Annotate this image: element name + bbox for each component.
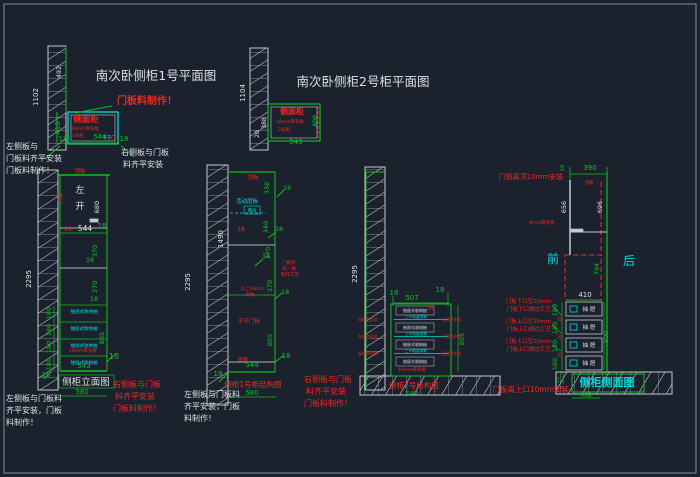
sideview-dim-10-bottom: 10 bbox=[555, 376, 561, 383]
sideview-label-front: 前 bbox=[547, 251, 559, 266]
elev1-dim-18-c: 18 bbox=[90, 295, 98, 303]
sideview-dim-180-3: 180 bbox=[551, 340, 559, 352]
sideview-drawer-pull-1 bbox=[570, 306, 577, 312]
plan1-note-doormake: 门板料制作！ bbox=[117, 94, 177, 107]
sideview-dim-10-top: 10 bbox=[560, 164, 566, 171]
struct2-dim-2295: 2295 bbox=[351, 265, 359, 283]
elev1-dim-580: 580 bbox=[75, 388, 88, 396]
elev1-note-right-2: 料齐平安装 bbox=[115, 391, 155, 401]
struct2-dim-18-red: 18 bbox=[427, 306, 433, 312]
struct1-label-shelf-qty: 两块 bbox=[248, 207, 257, 214]
elev1-dim-544: 544 bbox=[78, 224, 93, 233]
sideview-drawer-pull-2 bbox=[570, 324, 577, 330]
plan2-dim-388: 388 bbox=[261, 117, 268, 129]
struct1-note-right-3: 门板料制作！ bbox=[304, 398, 352, 408]
sideview-label-rear: 后 bbox=[623, 254, 635, 268]
struct1-dim-2295: 2295 bbox=[184, 273, 192, 291]
struct1-note-right-1: 右侧板与门板 bbox=[304, 374, 352, 384]
elev1-label-side: 门板 bbox=[57, 193, 64, 203]
sideview-note-1a: 门板下口空20mm bbox=[506, 297, 551, 305]
sideview-dim-410: 410 bbox=[578, 291, 591, 299]
struct2-side-right-1: 贴黑色木纹 bbox=[443, 317, 462, 322]
plan2-cab-name: 侧面柜 bbox=[280, 106, 304, 116]
sideview-title: 侧柜侧面图 bbox=[580, 375, 635, 389]
elev1-note-right-1: 右侧板与门板 bbox=[113, 379, 161, 389]
sideview-note-top: 门板离顶10mm安装 bbox=[499, 172, 564, 181]
struct1-note-left-2: 齐平安装，门板 bbox=[184, 401, 240, 411]
struct1-label-door: 平开门板 bbox=[238, 317, 261, 325]
plan1-note-left-2: 门板料齐平安装 bbox=[6, 153, 62, 163]
struct2-title: 侧柜2号结构图 bbox=[389, 380, 439, 390]
sideview-dim-800: 800 bbox=[602, 331, 610, 343]
struct1-label-shelf: 活动层板 bbox=[236, 197, 259, 205]
elev1-dim-18-b: 18 bbox=[86, 256, 94, 264]
struct2-rail-label-1: 三节轨道滑轨 bbox=[405, 314, 428, 319]
struct1-dim-544: 544 bbox=[245, 361, 259, 369]
elev1-door-char-1: 左 bbox=[75, 184, 84, 196]
sideview-note-back: 8mm厚背板 bbox=[529, 219, 555, 226]
elev1-label-top: 顶板 bbox=[74, 167, 86, 175]
struct2-dim-543: 543 bbox=[405, 390, 418, 398]
sideview-drawer-pull-4 bbox=[570, 360, 577, 366]
struct1-dim-340: 340 bbox=[262, 221, 270, 233]
struct1-dim-18-a: 18 bbox=[283, 184, 291, 192]
struct2-side-left-3: 贴黑色木纹 bbox=[359, 351, 378, 356]
struct1-note-small-3: 制作工艺 bbox=[281, 271, 299, 278]
elev1-dim-805: 805 bbox=[98, 332, 106, 344]
struct1-label-above-2: 厚板 bbox=[246, 291, 255, 298]
plan1-note-right-1: 右侧板与门板 bbox=[121, 147, 169, 157]
struct2-label-back: 18mm厚背板 bbox=[398, 366, 426, 373]
struct1-dim-18-c: 18 bbox=[262, 252, 270, 260]
struct2-board-3: 抽屉式收纳抽 bbox=[403, 341, 427, 347]
sideview-drawer-pull-3 bbox=[570, 342, 577, 348]
struct1-label-top: 顶板 bbox=[247, 173, 259, 181]
sideview-dim-656: 656 bbox=[560, 201, 568, 213]
cad-canvas: 1102492南次卧侧柜1号平面图门板料制作！侧面柜18mm厚背板1号柜平开门4… bbox=[0, 0, 700, 477]
plan1-dim-18-left: 18 bbox=[59, 135, 68, 143]
elev1-note-left-3: 料制作！ bbox=[6, 417, 38, 427]
elev1-wall-section bbox=[38, 170, 58, 390]
struct1-dim-338: 338 bbox=[263, 182, 271, 194]
struct2-dim-507: 507 bbox=[405, 294, 418, 302]
struct2-side-left-2: 贴黑色木纹 bbox=[359, 334, 378, 339]
plan1-note-right-2: 料齐平安装 bbox=[123, 159, 163, 169]
plan1-dim-18-right: 18 bbox=[120, 135, 129, 143]
struct2-rail-label-3: 三节轨道滑轨 bbox=[405, 348, 428, 353]
cad-drawing-viewport[interactable]: 1102492南次卧侧柜1号平面图门板料制作！侧面柜18mm厚背板1号柜平开门4… bbox=[0, 0, 700, 477]
plan2-dim-20: 20 bbox=[254, 130, 261, 138]
plan1-dim-1102: 1102 bbox=[32, 88, 40, 106]
plan1-dim-492: 492 bbox=[55, 66, 63, 78]
struct1-dim-18-d: 18 bbox=[281, 288, 289, 296]
elev1-dim-680: 680 bbox=[93, 201, 101, 213]
elev1-title: 侧柜立面图 bbox=[62, 376, 110, 388]
struct1-label-above-1: 以上18mm bbox=[240, 285, 264, 292]
elev1-dim-18-e: 18 bbox=[109, 352, 119, 361]
elev1-drawer-2: 抽屉式收纳抽 bbox=[71, 325, 98, 332]
struct2-side-right-3: 贴黑色木纹 bbox=[443, 351, 462, 356]
elev1-dim-543: 543 bbox=[77, 362, 90, 370]
elev1-dim-180-1: 180 bbox=[45, 307, 53, 319]
plan2-cab-back: 18mm厚背板 bbox=[276, 118, 304, 125]
struct1-note-right-2: 料齐平安装 bbox=[306, 386, 346, 396]
struct2-board-4: 抽屉式收纳抽 bbox=[403, 358, 427, 364]
struct2-dim-18-a: 18 bbox=[390, 289, 399, 297]
struct2-rail-label-2: 三节轨道滑轨 bbox=[405, 331, 428, 336]
struct1-dim-370-b: 370 bbox=[266, 280, 274, 292]
sideview-drawer-label-3: 抽 屉 bbox=[583, 341, 596, 349]
sideview-dim-390: 390 bbox=[583, 164, 596, 172]
sideview-dim-408: 408 bbox=[580, 392, 592, 399]
plan2-title: 南次卧侧柜2号柜平面图 bbox=[297, 74, 430, 89]
struct1-dim-18-e: 18 bbox=[214, 370, 223, 378]
sideview-note-2b: 门板上口倒边工艺 bbox=[507, 325, 552, 333]
elev1-note-left-2: 齐平安装，门板 bbox=[6, 405, 62, 415]
struct1-dim-580: 580 bbox=[245, 389, 258, 397]
plan1-cab-back: 18mm厚背板 bbox=[71, 125, 99, 132]
elev1-door-char-2: 开 bbox=[75, 201, 84, 212]
struct1-note-small-2: 先一遍 bbox=[282, 265, 296, 272]
struct1-note-left-3: 料制作！ bbox=[184, 413, 216, 423]
elev1-dim-2295: 2295 bbox=[25, 270, 33, 288]
struct1-note-left-1: 左侧板与门板料 bbox=[184, 389, 240, 399]
elev1-drawer-3: 抽屉式收纳抽 bbox=[71, 342, 98, 349]
sideview-label-top: 顶板 bbox=[585, 179, 594, 186]
struct2-side-left-1: 贴黑色木纹 bbox=[359, 317, 378, 322]
sideview-note-3b: 门板上口倒边工艺 bbox=[507, 345, 552, 353]
elev1-dim-180-4: 180 bbox=[45, 358, 53, 370]
sideview-note-1b: 门板下口倒边工艺 bbox=[507, 305, 552, 313]
struct2-board-2: 抽屉式收纳抽 bbox=[403, 324, 427, 330]
elev1-drawer-1: 抽屉式收纳抽 bbox=[71, 308, 98, 315]
sideview-dim-696: 696 bbox=[596, 201, 604, 213]
elev1-dim-180-2: 180 bbox=[45, 324, 53, 336]
elev1-dim-370-b: 370 bbox=[91, 281, 99, 293]
sideview-dim-794: 794 bbox=[593, 263, 601, 275]
struct1-dim-18-red: 18 bbox=[237, 226, 245, 233]
struct1-dim-18-f: 18 bbox=[282, 352, 291, 360]
sideview-note-2a: 门板上口空20mm bbox=[506, 317, 551, 325]
plan2-dim-543: 543 bbox=[289, 138, 302, 146]
elev1-label-back: 18mm厚背板 bbox=[69, 347, 97, 354]
struct1-note-small-1: 门板料 bbox=[282, 259, 296, 266]
plan1-cab-name: 侧面柜 bbox=[72, 114, 99, 125]
sideview-drawer-label-2: 抽 屉 bbox=[583, 323, 596, 331]
struct1-title: 侧柜1号柜结构图 bbox=[224, 379, 281, 389]
sideview-dim-180-2: 180 bbox=[551, 322, 559, 334]
elev1-note-left-1: 左侧板与门板料 bbox=[6, 393, 62, 403]
struct1-dim-1490: 1490 bbox=[217, 230, 225, 248]
plan2-cab-no: 2号柜 bbox=[278, 126, 290, 133]
struct1-dim-805: 805 bbox=[266, 334, 274, 346]
elev1-dim-18-d: 18 bbox=[42, 371, 51, 379]
elev1-dim-18-red: 18 bbox=[64, 226, 72, 233]
elev1-dim-18-a: 18 bbox=[98, 222, 107, 230]
elev1-note-right-3: 门板料制作！ bbox=[113, 403, 161, 413]
plan1-dim-544: 544 bbox=[93, 133, 107, 141]
sideview-drawer-label-1: 抽 屉 bbox=[583, 305, 596, 313]
struct2-dim-805: 805 bbox=[458, 333, 466, 345]
struct1-wall-section bbox=[207, 165, 228, 405]
struct2-dim-18-b: 18 bbox=[436, 286, 445, 294]
struct1-dim-18-b: 18 bbox=[275, 225, 283, 233]
plan1-cab-no: 1号柜 bbox=[72, 132, 84, 139]
sideview-dim-20-2: 20 bbox=[557, 334, 563, 340]
sideview-dim-180-1: 180 bbox=[551, 304, 559, 316]
plan2-dim-1104: 1104 bbox=[239, 84, 247, 102]
struct2-wall-section bbox=[365, 167, 385, 390]
plan1-note-left-1: 左侧板与 bbox=[6, 141, 38, 151]
sideview-dim-20-3: 20 bbox=[557, 352, 563, 358]
sideview-dim-180-4: 180 bbox=[551, 358, 559, 370]
struct2-board-1: 抽屉式收纳抽 bbox=[403, 307, 427, 313]
sideview-dim-20-1: 20 bbox=[557, 316, 563, 322]
elev1-dim-180-3: 180 bbox=[45, 341, 53, 353]
sideview-drawer-label-4: 抽 屉 bbox=[583, 359, 596, 367]
sideview-note-3a: 门板上口空20mm bbox=[506, 337, 551, 345]
struct1-leader-5 bbox=[255, 259, 263, 266]
plan1-dim-410: 410 bbox=[54, 121, 62, 134]
plan1-title: 南次卧侧柜1号平面图 bbox=[96, 68, 216, 83]
plan1-note-left-3: 门板料制作！ bbox=[6, 165, 54, 175]
sideview-note-bottom: 门板离上口10mm安装 bbox=[492, 384, 569, 394]
plan2-dim-408: 408 bbox=[311, 115, 319, 127]
